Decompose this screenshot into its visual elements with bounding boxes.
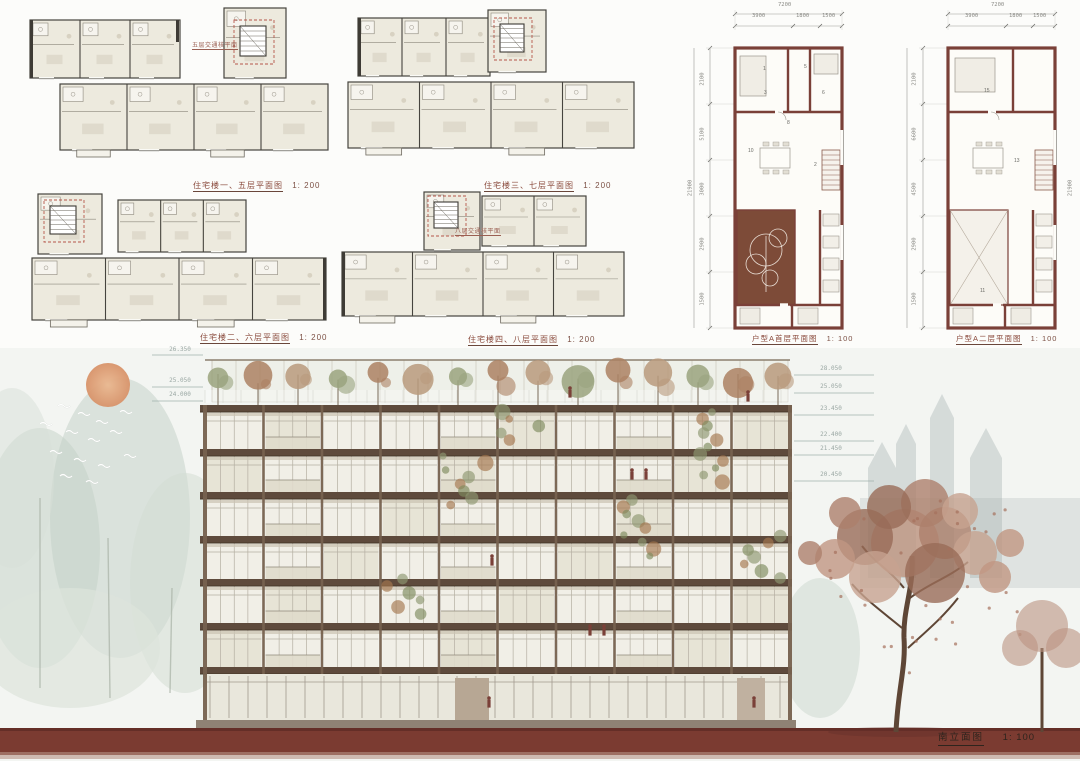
floor-plan-1-caption: 住宅楼一、五层平面图 1: 200 [193, 180, 320, 191]
unit-plan-a-second-caption: 户型A二层平面图 1: 100 [956, 333, 1057, 344]
dim-seg: 3900 [752, 13, 765, 19]
room-number: 11 [980, 288, 985, 294]
caption-scale: 1: 200 [292, 181, 320, 190]
dim-left: 5100 [700, 127, 706, 140]
floor-plan-3 [26, 192, 331, 334]
floor-plan-2-caption: 住宅楼三、七层平面图 1: 200 [484, 180, 611, 191]
room-number: 3 [764, 90, 767, 96]
core-note-2: 八层交通核平面 [455, 226, 501, 236]
level-label: 21.450 [806, 445, 856, 452]
room-number: 1 [763, 66, 766, 72]
dim-seg: 1500 [1033, 13, 1046, 19]
south-elevation-rendering [0, 348, 1080, 761]
dim-left: 1500 [912, 292, 918, 305]
dim-left: 2100 [912, 72, 918, 85]
dim-left: 1500 [700, 292, 706, 305]
room-number: 8 [787, 120, 790, 126]
unit-plan-a-ground-caption: 户型A首层平面图 1: 100 [752, 333, 853, 344]
room-number: 15 [984, 88, 990, 94]
dim-seg: 3900 [965, 13, 978, 19]
room-number: 6 [822, 90, 825, 96]
room-number: 13 [1014, 158, 1020, 164]
dim-left: 2900 [700, 237, 706, 250]
core-note-1: 五层交通核平面 [192, 40, 238, 50]
level-label: 23.450 [806, 405, 856, 412]
caption-text: 住宅楼一、五层平面图 [193, 181, 283, 192]
level-label: 25.050 [806, 383, 856, 390]
room-number: 5 [804, 64, 807, 70]
level-label: 24.000 [155, 391, 205, 398]
dim-seg: 1500 [822, 13, 835, 19]
presentation-board: 住宅楼一、五层平面图 1: 200 住宅楼三、七层平面图 1: 200 住宅楼二… [0, 0, 1080, 761]
unit-plan-a-second [893, 0, 1080, 348]
dim-left: 4500 [912, 182, 918, 195]
room-number: 10 [748, 148, 754, 154]
floor-plan-4-caption: 住宅楼四、八层平面图 1: 200 [468, 334, 595, 345]
floor-plan-2 [340, 8, 640, 180]
level-label: 26.350 [155, 346, 205, 353]
dim-side-total: 21900 [687, 180, 693, 197]
dim-seg: 1800 [796, 13, 809, 19]
level-label: 28.050 [806, 365, 856, 372]
dim-side-total: 21900 [1067, 180, 1073, 197]
room-number: 2 [814, 162, 817, 168]
dim-left: 3000 [700, 182, 706, 195]
unit-plan-a-ground [680, 0, 880, 348]
dim-total-a1: 7200 [778, 2, 791, 8]
dim-total-a2: 7200 [991, 2, 1004, 8]
level-label: 20.450 [806, 471, 856, 478]
dim-left: 6600 [912, 127, 918, 140]
dim-left: 2900 [912, 237, 918, 250]
elevation-caption: 南立面图 1: 100 [938, 729, 1035, 743]
level-label: 22.400 [806, 431, 856, 438]
dim-left: 2100 [700, 72, 706, 85]
dim-seg: 1800 [1009, 13, 1022, 19]
level-label: 25.050 [155, 377, 205, 384]
floor-plan-3-caption: 住宅楼二、六层平面图 1: 200 [200, 332, 327, 343]
floor-plan-4 [336, 190, 628, 336]
floor-plan-1 [26, 4, 336, 182]
